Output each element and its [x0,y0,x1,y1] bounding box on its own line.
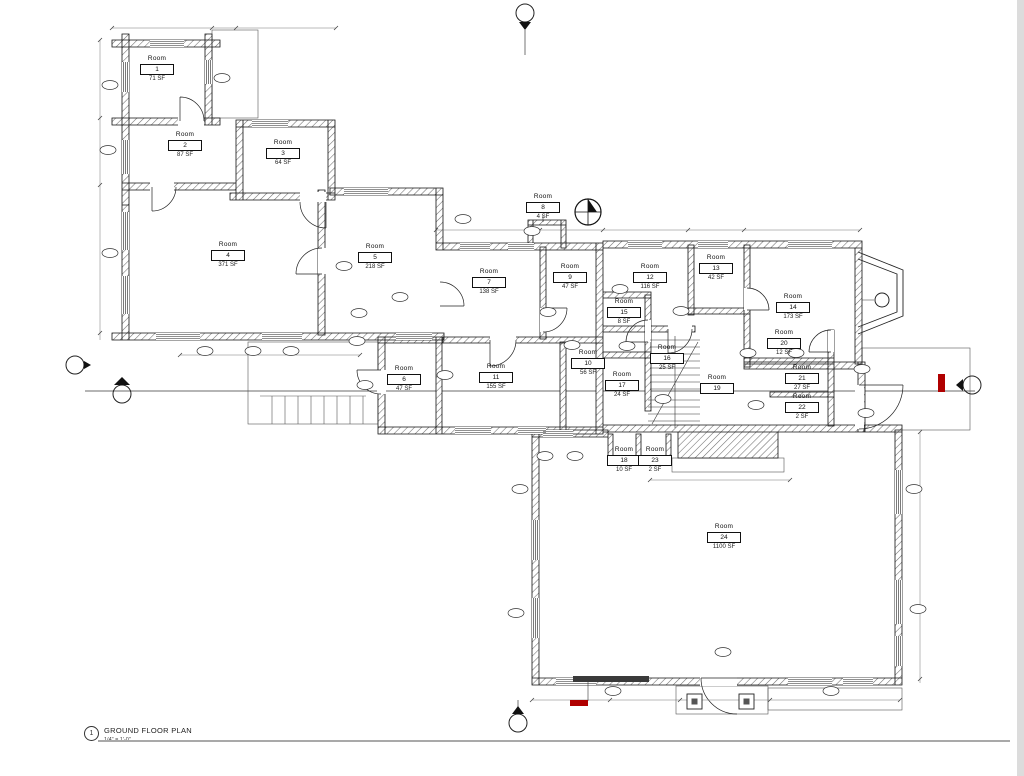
window-edge [1017,0,1024,776]
section-cut-line [85,30,975,714]
floor-plan-page: Room171 SF Room287 SF Room364 SF Room437… [0,0,1024,776]
red-mark-bottom [570,700,588,706]
floor-plan-drawing [0,0,1024,776]
plan-title: GROUND FLOOR PLAN [104,726,192,735]
doors [152,97,903,714]
red-mark-right [938,374,945,392]
detail-number-bubble: 1 [84,726,99,741]
stairs [648,336,700,428]
compass-icon [575,199,601,225]
porch-columns [687,694,754,709]
red-marks [570,374,945,706]
sheet-frame-line [98,740,1010,742]
tag-bubbles [100,74,926,696]
